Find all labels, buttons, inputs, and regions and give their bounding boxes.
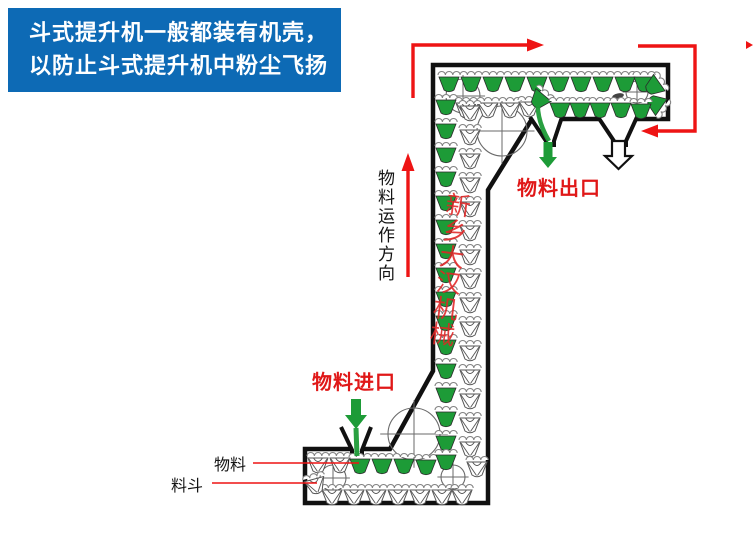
bucket-lip [459, 413, 481, 417]
bucket-lip [630, 99, 652, 103]
bucket-lip [548, 72, 570, 76]
bucket-lip [435, 95, 457, 99]
bucket-lip [321, 485, 343, 489]
bucket-lip [409, 485, 431, 489]
bucket-lip [435, 167, 457, 171]
bucket-lip [466, 457, 488, 461]
bucket-lip [459, 389, 481, 393]
bucket-lip [459, 149, 481, 153]
outlet-arrow-head [539, 157, 557, 168]
label-bucket: 料斗 [171, 472, 203, 496]
bucket-lip [349, 454, 371, 458]
label-material-outlet: 物料出口 [517, 172, 601, 201]
bucket-lip [435, 407, 457, 411]
bucket-lip [459, 365, 481, 369]
bucket-lip [435, 119, 457, 123]
inlet-arrow-head [345, 415, 367, 429]
bucket-lip [365, 485, 387, 489]
bucket-lip [482, 72, 504, 76]
bucket-lip [435, 359, 457, 363]
label-material-inlet: 物料进口 [312, 366, 396, 395]
bucket-lip [329, 453, 351, 457]
red-direction-arrow-head [402, 153, 415, 171]
label-material: 物料 [214, 451, 246, 475]
bucket-lip [387, 485, 409, 489]
bucket-lip [459, 317, 481, 321]
bucket-lip [435, 143, 457, 147]
bucket-lip [526, 72, 548, 76]
label-material-direction: 物料运作方向 [372, 169, 397, 283]
bucket-lip [459, 173, 481, 177]
red-edge-mark [746, 41, 753, 49]
red-arrowhead-right [527, 39, 544, 52]
bucket-lip [435, 450, 457, 454]
bucket-lip [393, 454, 415, 458]
inlet-stream [356, 428, 357, 456]
bucket-lip [589, 98, 611, 102]
bucket-lip [459, 437, 481, 441]
bucket-lip [569, 98, 591, 102]
bucket-lip [459, 101, 481, 105]
bucket-lip [610, 98, 632, 102]
red-arrowhead-left [641, 125, 658, 138]
bucket-lip [343, 485, 365, 489]
bucket-lip [592, 72, 614, 76]
bucket-lip [477, 98, 499, 102]
bucket-lip [415, 455, 437, 459]
bucket-lip [451, 485, 473, 489]
bucket-lip [371, 454, 393, 458]
bucket-elevator-diagram: 斗式提升机一般都装有机壳， 以防止斗式提升机中粉尘飞扬 物料运作方向 物料出口 … [0, 0, 753, 535]
bucket-lip [307, 453, 329, 457]
bucket-lip [438, 72, 460, 76]
bucket-lip [459, 125, 481, 129]
bucket-lip [455, 98, 477, 102]
bucket-lip [549, 98, 571, 102]
bucket-lip [570, 72, 592, 76]
bucket-lip [460, 72, 482, 76]
bucket-lip [435, 431, 457, 435]
bucket-lip [435, 383, 457, 387]
bucket-lip [633, 72, 655, 76]
bucket-lip [431, 485, 453, 489]
bucket-lip [504, 72, 526, 76]
bucket-lip [459, 341, 481, 345]
